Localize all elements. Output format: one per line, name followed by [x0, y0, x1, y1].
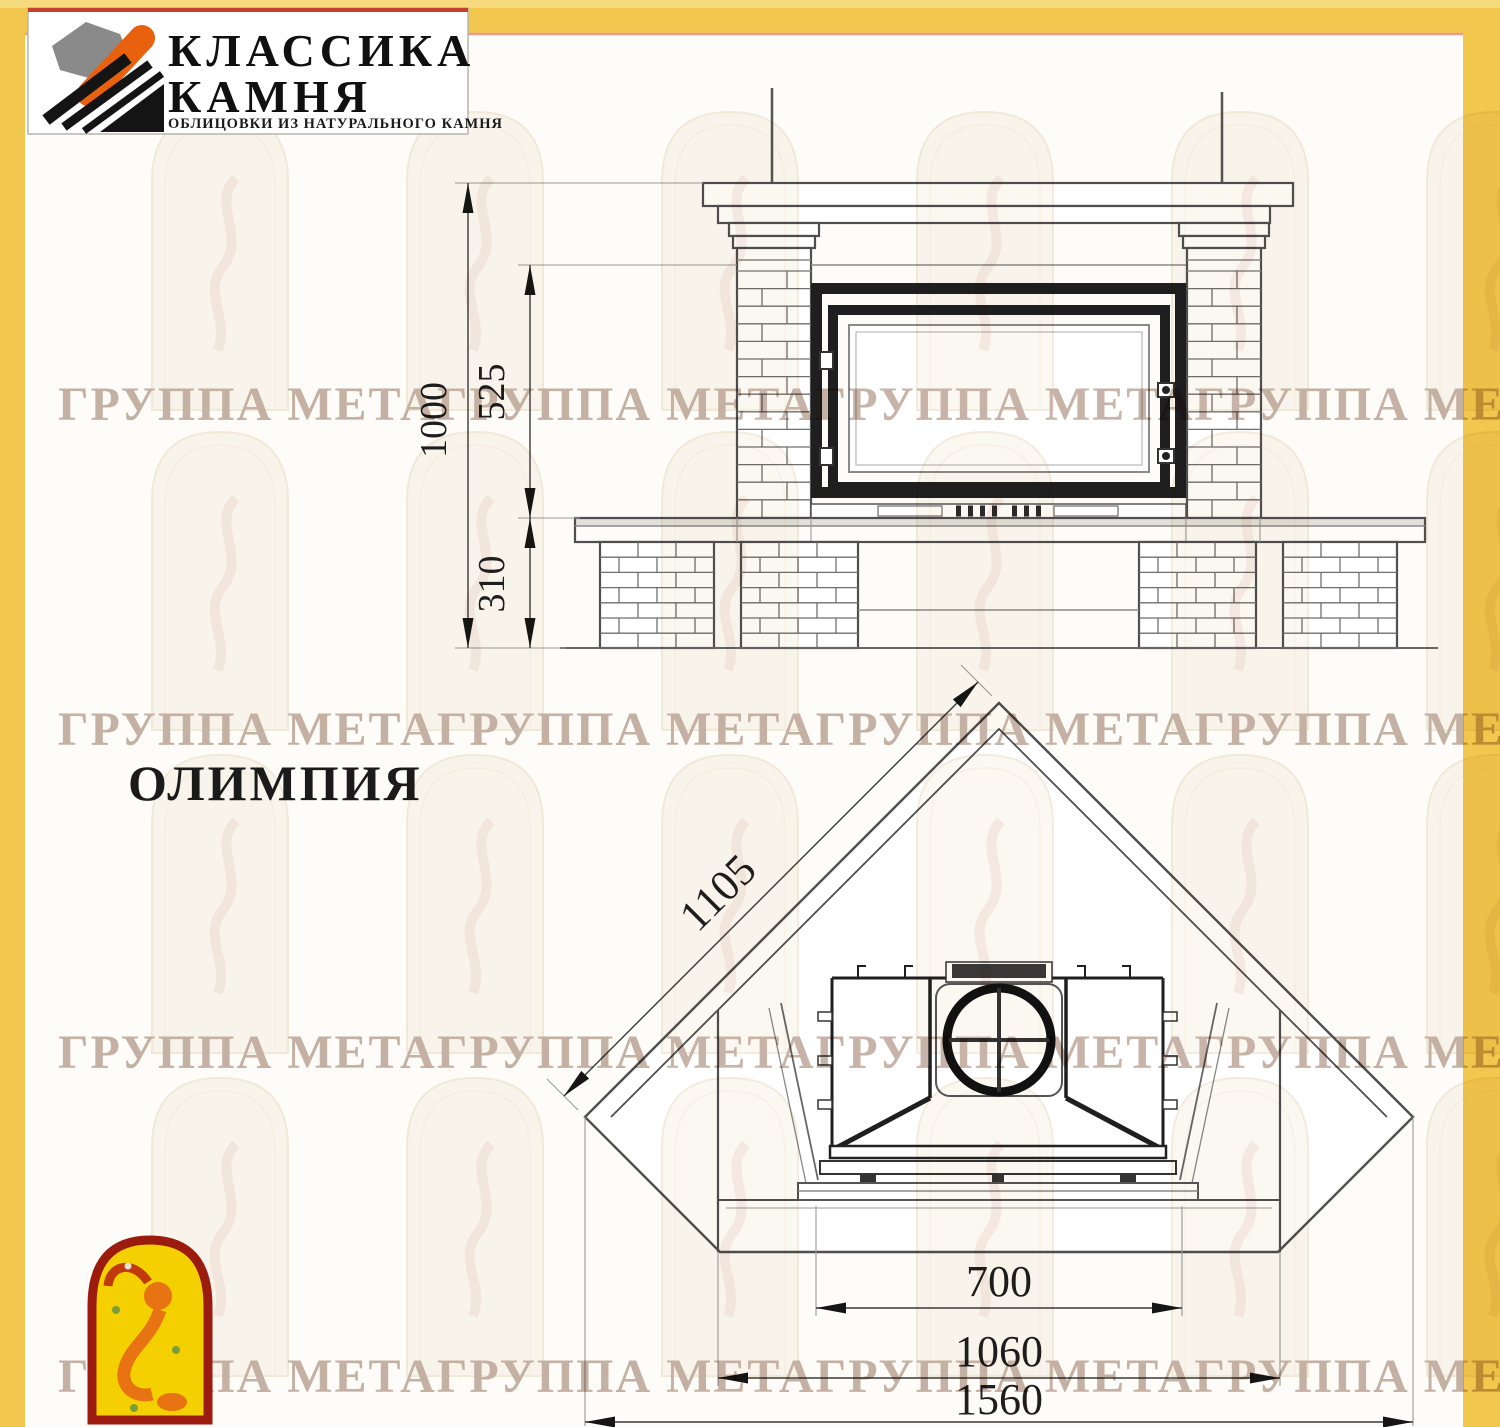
watermark-arch	[1427, 112, 1500, 410]
brand-name-line1: КЛАССИКА	[168, 25, 475, 76]
watermark-arch	[662, 1078, 798, 1376]
door-hinge-lower-pin	[1162, 452, 1170, 460]
watermark-arch	[917, 755, 1053, 1053]
watermark-arch	[662, 112, 798, 410]
watermark-arch	[1172, 1078, 1308, 1376]
watermark-arch	[1427, 1078, 1500, 1376]
brand-subtitle: ОБЛИЦОВКИ ИЗ НАТУРАЛЬНОГО КАМНЯ	[168, 116, 503, 132]
watermark-arch	[152, 112, 288, 410]
watermark-text-row: ГРУППА МЕТАГРУППА МЕТАГРУППА МЕТАГРУППА …	[58, 1026, 1500, 1079]
watermark-arch	[917, 112, 1053, 410]
watermark-arch	[662, 755, 798, 1053]
watermark-arch	[1172, 755, 1308, 1053]
watermark-arch	[407, 1078, 543, 1376]
watermark-arch	[407, 112, 543, 410]
watermark-arch	[407, 755, 543, 1053]
door-latch-lower	[820, 448, 833, 465]
arch-emblem	[92, 1240, 208, 1420]
watermark-arch	[1427, 755, 1500, 1053]
watermark-arch	[917, 432, 1053, 730]
watermark-arch	[1172, 112, 1308, 410]
watermark-text-row: ГРУППА МЕТАГРУППА МЕТАГРУППА МЕТАГРУППА …	[58, 378, 1500, 431]
door-latch-upper	[820, 352, 833, 369]
scanned-fireplace-drawing-page: 1000 525 310	[0, 0, 1500, 1427]
watermark-arch	[1172, 432, 1308, 730]
watermark-arch	[1427, 432, 1500, 730]
emblem-figure-head	[144, 1282, 172, 1310]
emblem-figure-base	[157, 1393, 187, 1411]
brand-name-line2: КАМНЯ	[168, 71, 372, 122]
watermark-arch	[662, 432, 798, 730]
watermark-arch	[407, 432, 543, 730]
watermark-arch	[152, 432, 288, 730]
watermark-text-row: ГРУППА МЕТАГРУППА МЕТАГРУППА МЕТАГРУППА …	[58, 1350, 1500, 1403]
yellow-border-top-highlight	[0, 0, 1500, 8]
watermark-text-row: ГРУППА МЕТАГРУППА МЕТАГРУППА МЕТАГРУППА …	[58, 703, 1500, 756]
brand-logo-box: КЛАССИКА КАМНЯ ОБЛИЦОВКИ ИЗ НАТУРАЛЬНОГО…	[28, 8, 503, 134]
watermark-arch	[917, 1078, 1053, 1376]
model-title: ОЛИМПИЯ	[128, 755, 423, 811]
